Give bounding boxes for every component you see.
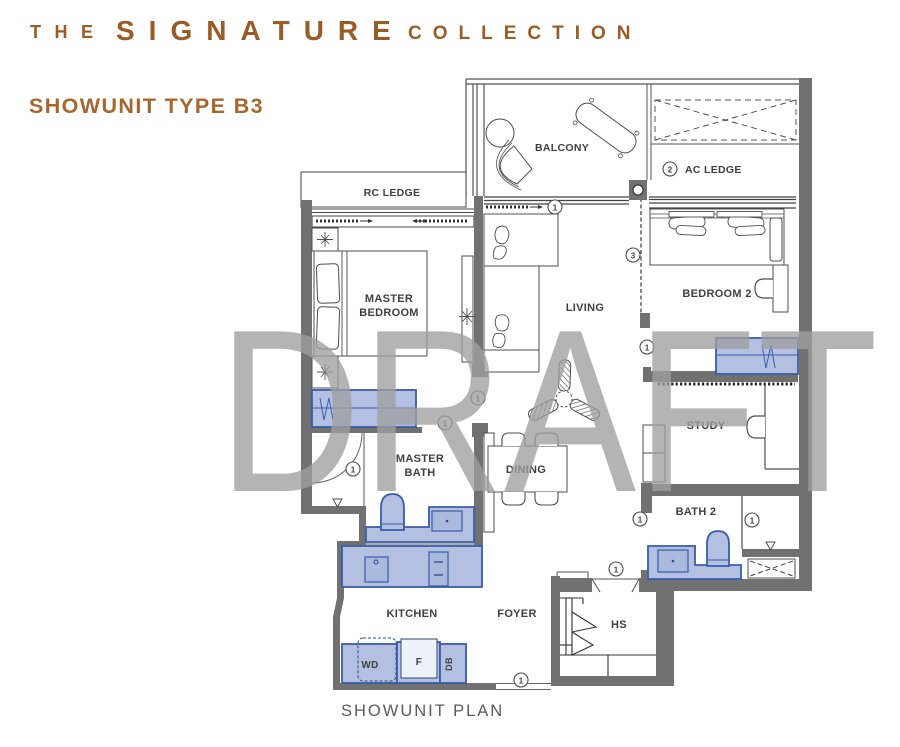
svg-text:SIGNATURE: SIGNATURE — [116, 15, 405, 46]
svg-text:3: 3 — [631, 252, 636, 261]
svg-text:WD: WD — [361, 660, 378, 671]
svg-text:2: 2 — [668, 166, 673, 175]
svg-text:1: 1 — [553, 204, 558, 213]
svg-text:1: 1 — [519, 677, 524, 686]
svg-text:AC LEDGE: AC LEDGE — [685, 164, 742, 176]
svg-text:COLLECTION: COLLECTION — [408, 23, 642, 44]
svg-text:SHOWUNIT PLAN: SHOWUNIT PLAN — [341, 702, 504, 720]
svg-text:DB: DB — [444, 657, 454, 671]
svg-text:FOYER: FOYER — [497, 608, 536, 620]
svg-text:RC LEDGE: RC LEDGE — [364, 187, 421, 199]
svg-text:BALCONY: BALCONY — [535, 142, 589, 154]
svg-text:1: 1 — [614, 566, 619, 575]
svg-text:HS: HS — [611, 619, 627, 631]
svg-text:KITCHEN: KITCHEN — [387, 608, 438, 620]
svg-text:SHOWUNIT TYPE B3: SHOWUNIT TYPE B3 — [29, 94, 264, 118]
svg-text:THE: THE — [30, 22, 107, 42]
svg-text:DRAFT: DRAFT — [218, 282, 878, 541]
svg-text:F: F — [416, 657, 422, 668]
